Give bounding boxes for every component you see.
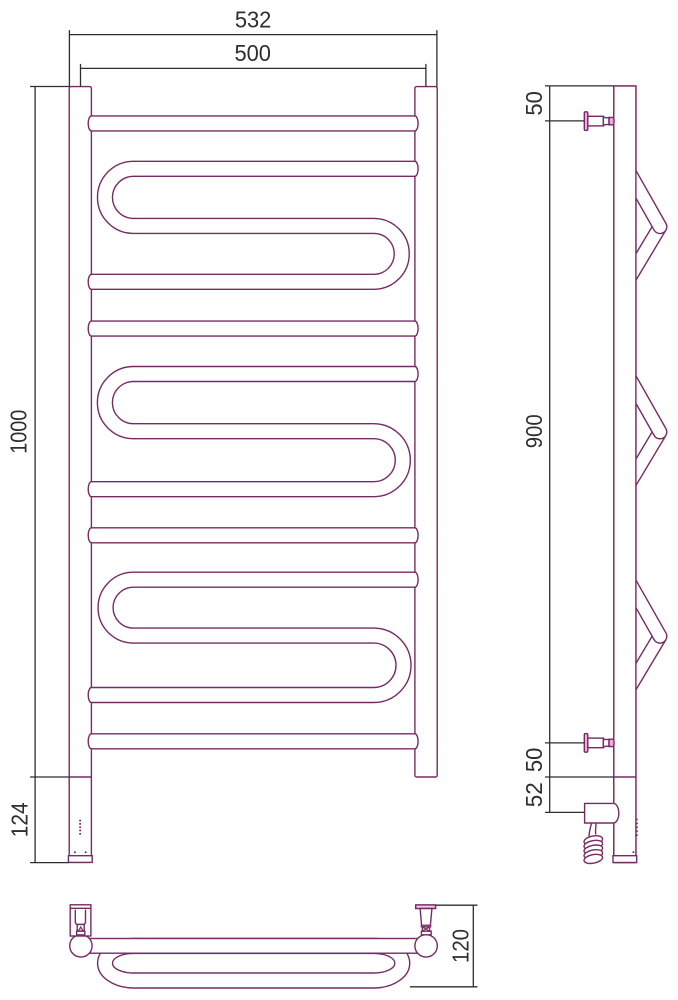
svg-text:50: 50 bbox=[521, 91, 547, 116]
svg-text:124: 124 bbox=[7, 802, 33, 837]
svg-text:52: 52 bbox=[521, 782, 547, 807]
svg-text:500: 500 bbox=[234, 40, 271, 66]
svg-text:120: 120 bbox=[448, 929, 474, 963]
svg-text:1000: 1000 bbox=[6, 410, 32, 454]
svg-text:900: 900 bbox=[521, 414, 547, 448]
svg-text:50: 50 bbox=[521, 748, 547, 773]
svg-text:532: 532 bbox=[235, 6, 272, 32]
